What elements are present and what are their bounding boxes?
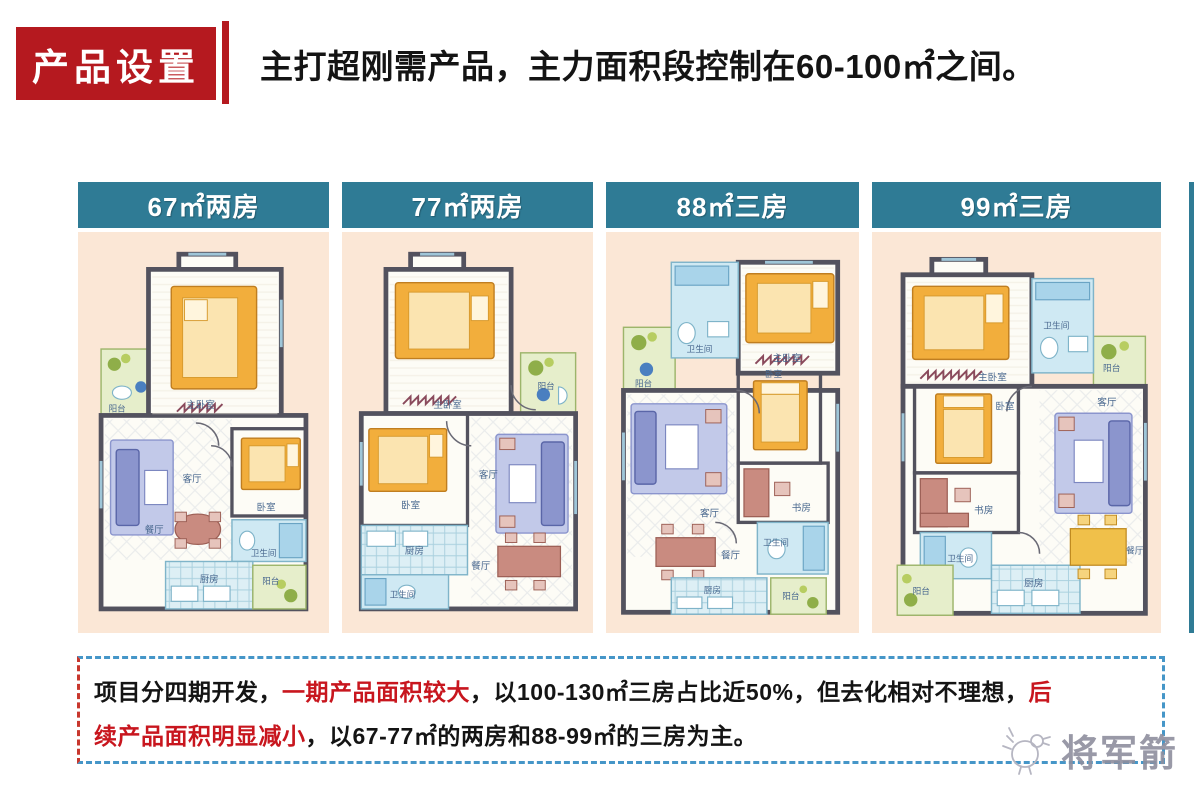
panel-67-header: 67㎡两房 — [78, 182, 329, 228]
panel-99-header: 99㎡三房 — [872, 182, 1161, 228]
panel-67-body: 主卧室 客厅 餐厅 卧室 卫生间 厨房 阳台 阳台 — [78, 232, 329, 633]
room-label-balcony: 阳台 — [782, 590, 799, 601]
room-label-bath: 卫生间 — [763, 536, 789, 547]
room-label-bath: 卫生间 — [390, 590, 416, 600]
room-label-balcony: 阳台 — [635, 378, 652, 389]
note-text-highlight: 续产品面积明显减小 — [94, 723, 306, 749]
room-label-living: 客厅 — [1097, 397, 1117, 409]
floor-plan-99: 主卧室 卫生间 阳台 客厅 卧室 书房 卫生间 厨房 餐厅 阳台 — [878, 238, 1155, 627]
room-label-master: 主卧室 — [433, 399, 461, 411]
room-label-dining: 餐厅 — [471, 560, 490, 572]
room-label-bedroom: 卧室 — [257, 501, 276, 513]
panel-77-title: 77㎡两房 — [412, 187, 524, 224]
floorplan-panels: 67㎡两房 — [78, 182, 1164, 633]
panel-77: 77㎡两房 — [342, 182, 593, 633]
panel-99-body: 主卧室 卫生间 阳台 客厅 卧室 书房 卫生间 厨房 餐厅 阳台 — [872, 232, 1161, 633]
floor-plan-77: 主卧室 阳台 卧室 客厅 厨房 卫生间 餐厅 — [348, 238, 587, 627]
room-label-bedroom: 卧室 — [995, 400, 1015, 412]
room-label-bedroom: 卧室 — [765, 368, 783, 379]
cropped-panel-edge — [1189, 182, 1194, 633]
badge-separator-bar — [222, 21, 229, 104]
rooster-sketch-icon — [997, 724, 1055, 776]
note-text-highlight: 后 — [1028, 679, 1052, 705]
note-text: ，以100-130㎡三房占比近50%，但去化相对不理想， — [470, 679, 1028, 705]
room-label-balcony: 阳台 — [913, 585, 930, 596]
panel-67-title: 67㎡两房 — [148, 187, 260, 224]
room-label-master: 主卧室 — [773, 353, 802, 365]
room-label-living: 客厅 — [183, 473, 202, 485]
room-label-balcony: 阳台 — [109, 404, 126, 414]
panel-99: 99㎡三房 — [872, 182, 1161, 633]
note-line-2: 续产品面积明显减小，以67-77㎡的两房和88-99㎡的三房为主。 — [94, 714, 1146, 758]
note-line-1: 项目分四期开发，一期产品面积较大，以100-130㎡三房占比近50%，但去化相对… — [94, 670, 1146, 714]
panel-88: 88㎡三房 — [606, 182, 859, 633]
room-label-balcony: 阳台 — [262, 576, 279, 586]
panel-99-title: 99㎡三房 — [961, 187, 1073, 224]
room-label-living: 客厅 — [479, 469, 498, 481]
room-label-bedroom: 卧室 — [401, 499, 420, 511]
room-label-master: 主卧室 — [186, 399, 214, 411]
note-text-highlight: 一期产品面积较大 — [282, 679, 470, 705]
section-badge-label: 产品设置 — [32, 37, 200, 91]
panel-77-header: 77㎡两房 — [342, 182, 593, 228]
room-label-kitchen: 厨房 — [704, 584, 721, 595]
page-title: 主打超刚需产品，主力面积段控制在60-100㎡之间。 — [260, 40, 1036, 88]
room-label-bath: 卫生间 — [947, 552, 973, 563]
room-label-balcony: 阳台 — [1103, 362, 1120, 373]
room-label-bath: 卫生间 — [1043, 320, 1069, 331]
note-text: 项目分四期开发， — [94, 679, 282, 705]
room-label-bath: 卫生间 — [687, 343, 713, 354]
room-label-master: 主卧室 — [978, 372, 1007, 384]
watermark-text: 将军箭 — [1061, 723, 1178, 777]
floor-plan-67: 主卧室 客厅 餐厅 卧室 卫生间 厨房 阳台 阳台 — [84, 238, 323, 627]
section-badge: 产品设置 — [16, 27, 216, 100]
room-label-dining: 餐厅 — [721, 550, 741, 562]
room-label-study: 书房 — [974, 504, 993, 516]
room-label-dining: 餐厅 — [1126, 546, 1144, 556]
floor-plan-88: 卫生间 主卧室 阳台 客厅 卧室 书房 餐厅 厨房 卫生间 阳台 — [612, 238, 853, 627]
room-label-kitchen: 厨房 — [405, 545, 424, 557]
room-label-balcony: 阳台 — [538, 381, 555, 391]
room-label-bath: 卫生间 — [251, 548, 277, 558]
slide: 产品设置 主打超刚需产品，主力面积段控制在60-100㎡之间。 67㎡两房 — [0, 0, 1194, 798]
room-label-kitchen: 厨房 — [1024, 577, 1043, 589]
panel-88-title: 88㎡三房 — [677, 187, 789, 224]
watermark: 将军箭 — [997, 723, 1178, 777]
room-label-kitchen: 厨房 — [200, 573, 219, 585]
room-label-living: 客厅 — [700, 508, 720, 520]
panel-67: 67㎡两房 — [78, 182, 329, 633]
note-text: ，以67-77㎡的两房和88-99㎡的三房为主。 — [306, 723, 758, 749]
room-label-dining: 餐厅 — [145, 524, 164, 536]
room-label-study: 书房 — [792, 502, 811, 514]
panel-88-body: 卫生间 主卧室 阳台 客厅 卧室 书房 餐厅 厨房 卫生间 阳台 — [606, 232, 859, 633]
panel-77-body: 主卧室 阳台 卧室 客厅 厨房 卫生间 餐厅 — [342, 232, 593, 633]
panel-88-header: 88㎡三房 — [606, 182, 859, 228]
